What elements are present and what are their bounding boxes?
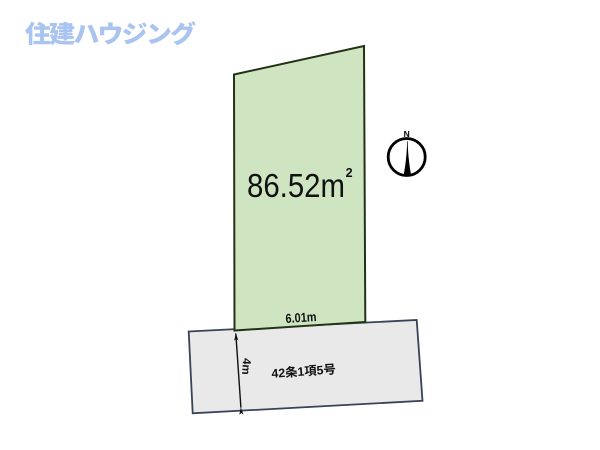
svg-text:4m: 4m: [239, 358, 252, 375]
svg-text:2: 2: [346, 166, 353, 180]
svg-text:1: 1: [297, 365, 305, 379]
svg-text:5: 5: [316, 363, 324, 377]
svg-text:N: N: [404, 129, 410, 139]
svg-text:42: 42: [271, 366, 286, 381]
svg-text:86.52m: 86.52m: [247, 167, 345, 204]
svg-text:6.01m: 6.01m: [285, 309, 317, 326]
